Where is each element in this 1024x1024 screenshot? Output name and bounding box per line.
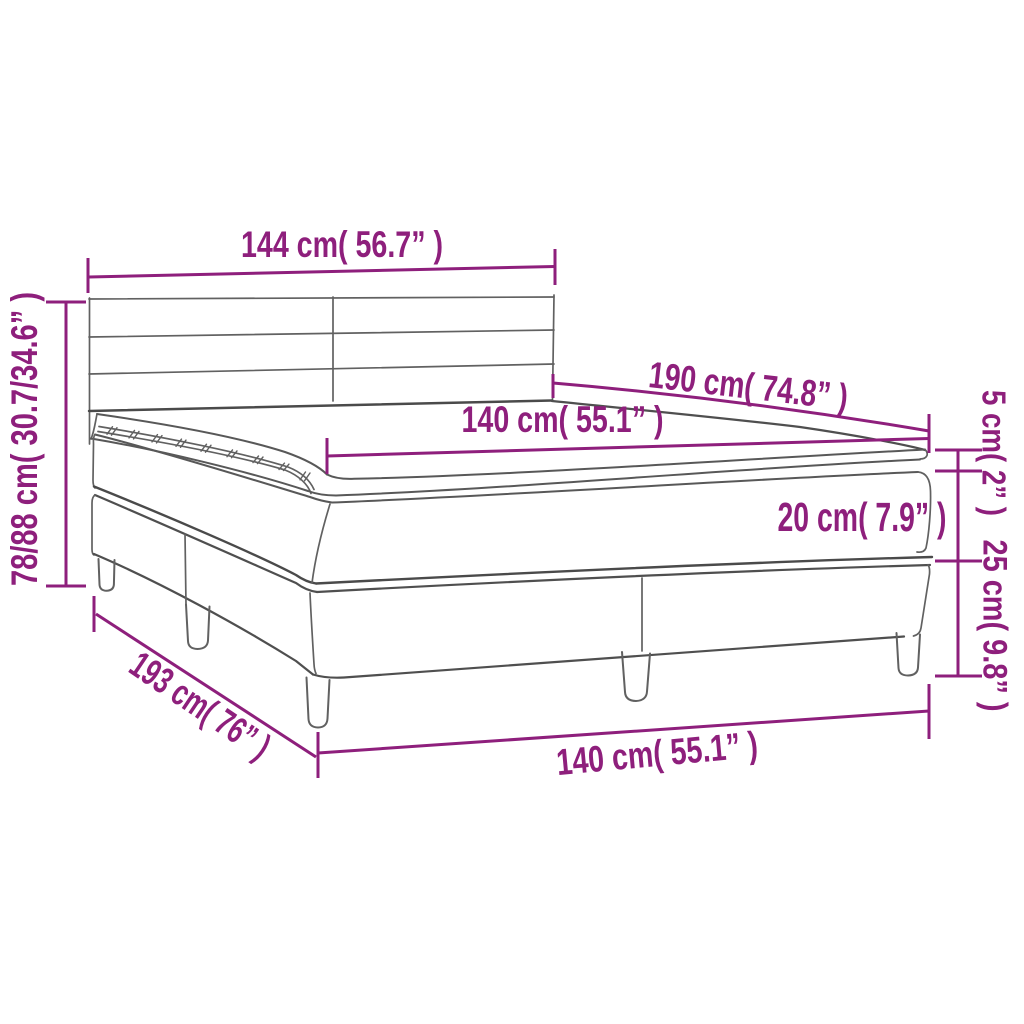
svg-text:5 cm( 2” ): 5 cm( 2” )	[976, 390, 1013, 516]
svg-text:78/88 cm( 30.7/34.6” ): 78/88 cm( 30.7/34.6” )	[4, 292, 45, 586]
svg-text:25 cm( 9.8” ): 25 cm( 9.8” )	[976, 540, 1014, 712]
svg-text:20 cm( 7.9” ): 20 cm( 7.9” )	[778, 494, 947, 540]
svg-text:140 cm( 55.1” ): 140 cm( 55.1” )	[462, 399, 664, 440]
svg-text:144 cm( 56.7” ): 144 cm( 56.7” )	[241, 224, 443, 265]
